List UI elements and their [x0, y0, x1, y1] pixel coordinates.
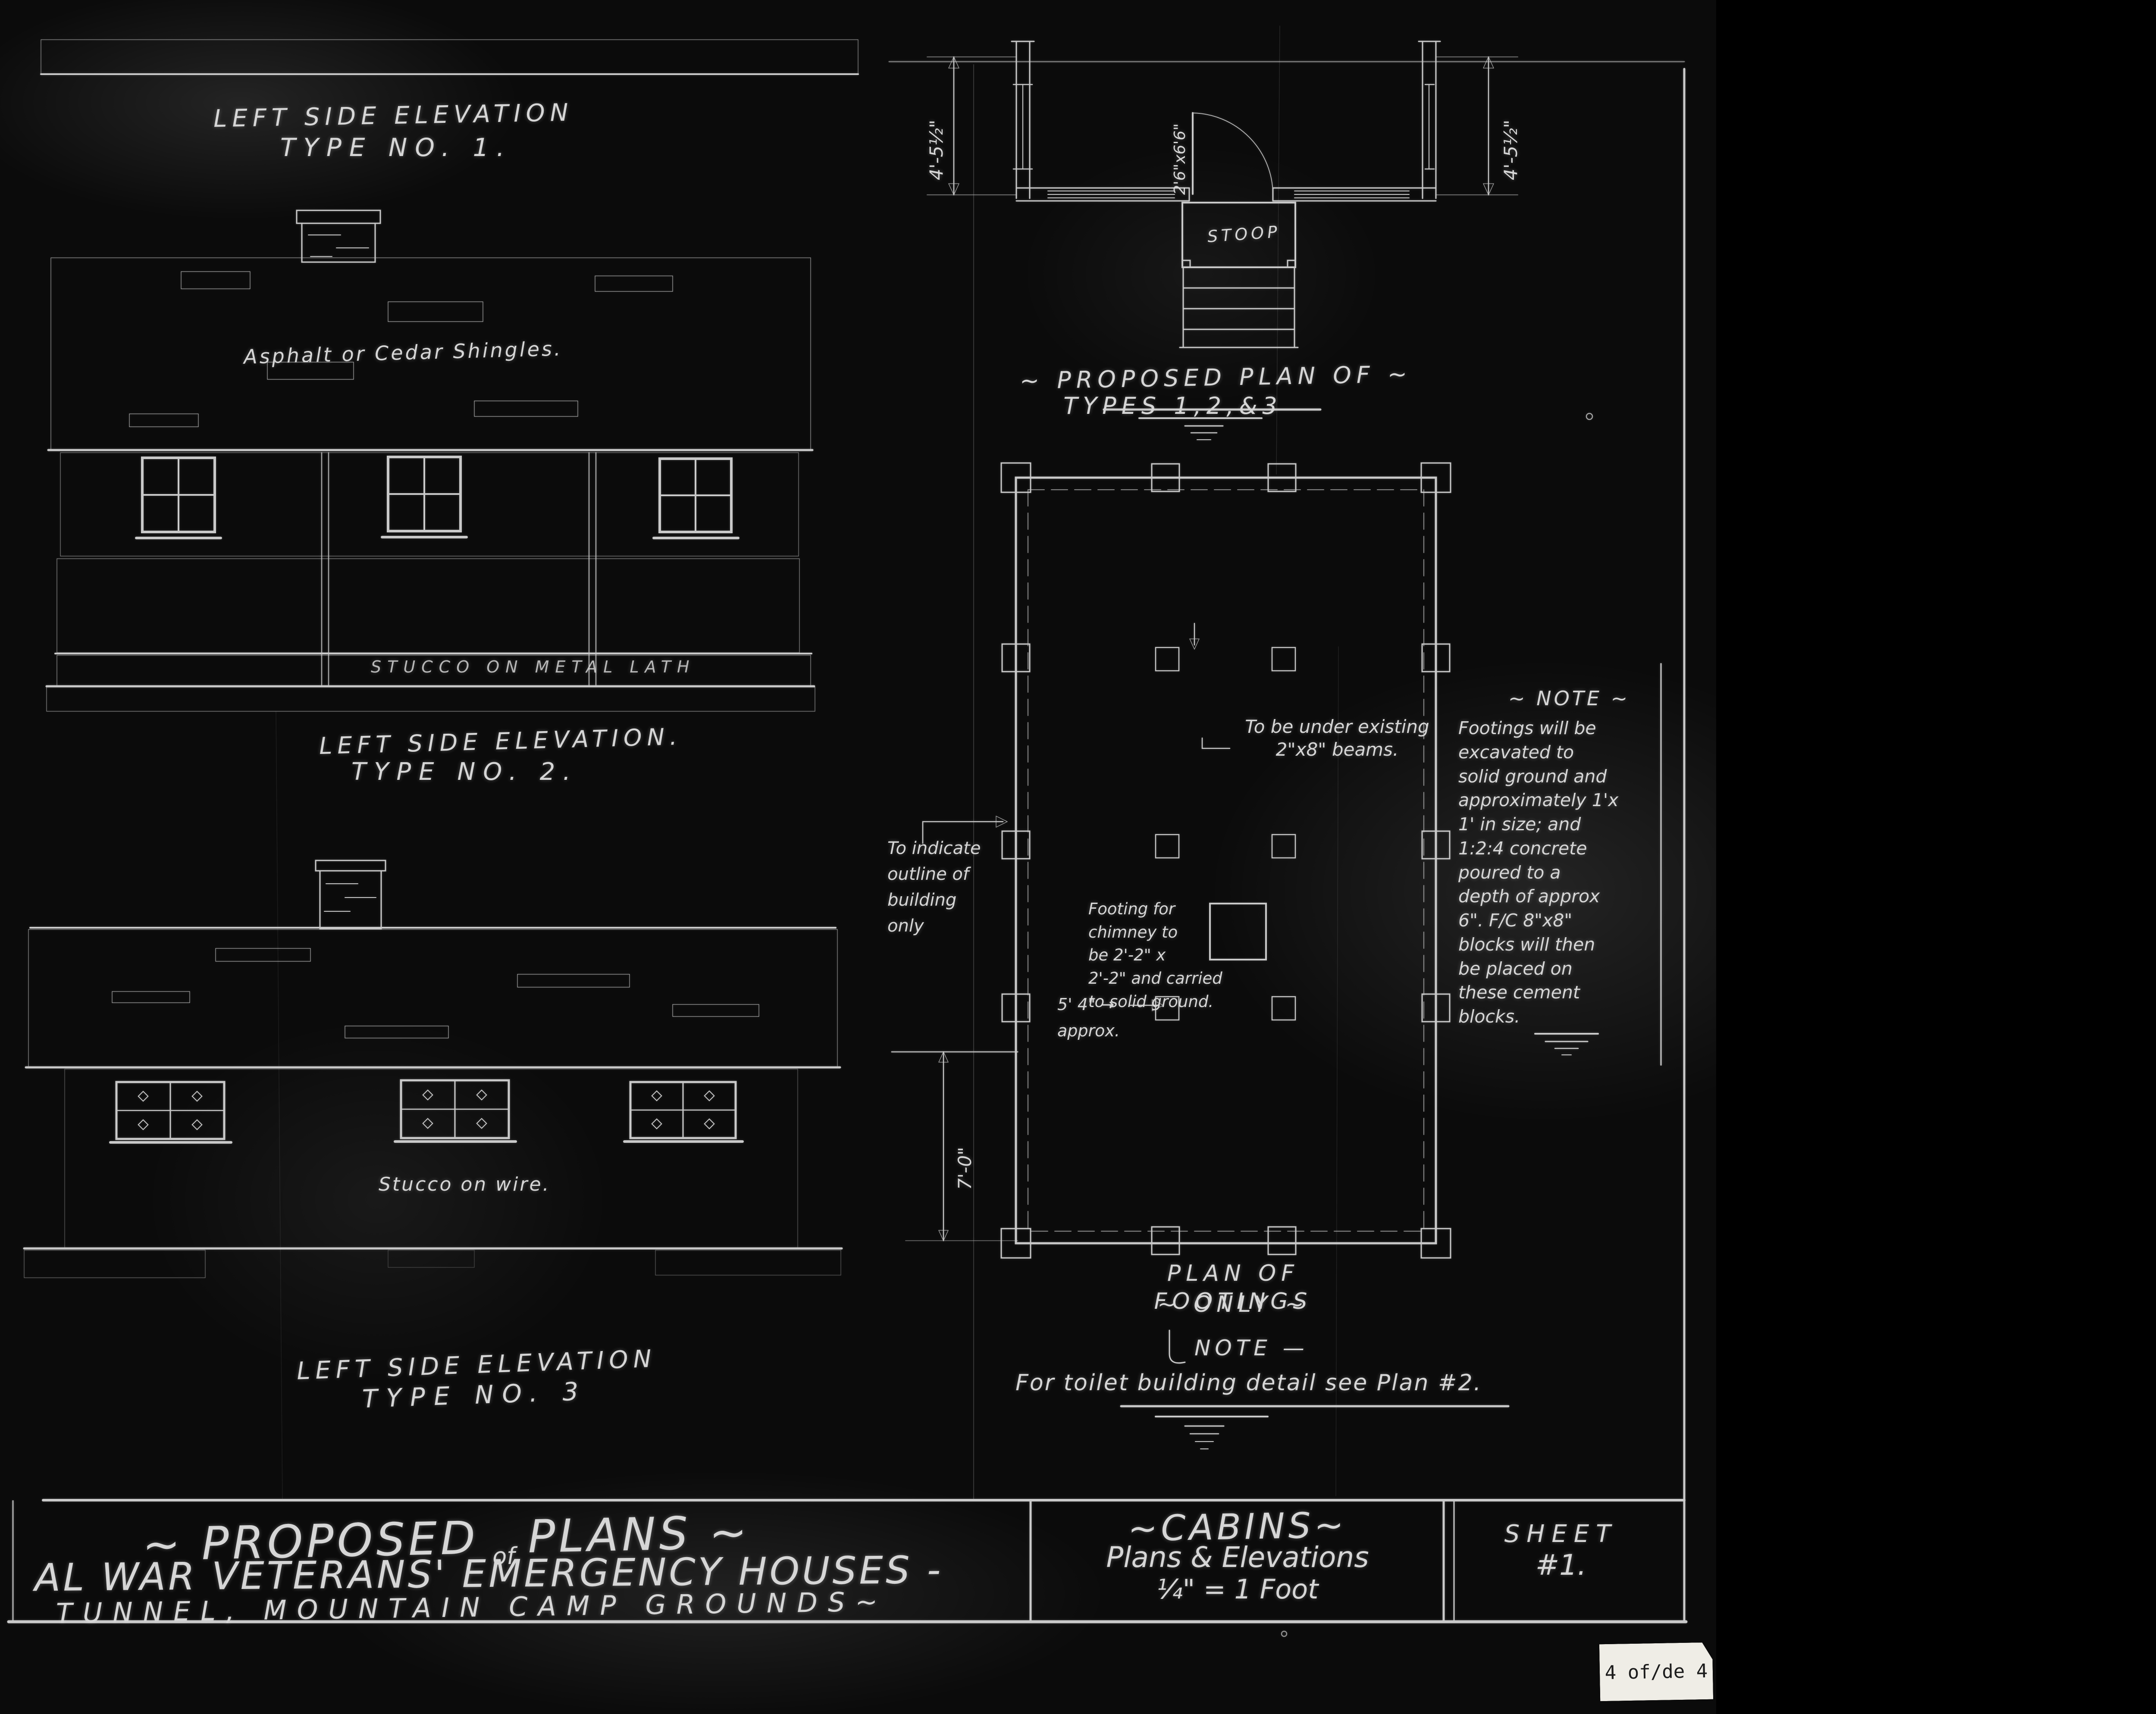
door-size-label: 2'6"x6'6" — [1170, 123, 1190, 195]
blueprint-sheet: LEFT SIDE ELEVATION TYPE NO. 1. Asphalt … — [0, 0, 1716, 1714]
type2-subtitle: TYPE NO. 2. — [351, 757, 578, 787]
type2-wall-label: Stucco on wire. — [379, 1173, 551, 1196]
scanned-blueprint-page: LEFT SIDE ELEVATION TYPE NO. 1. Asphalt … — [0, 0, 2156, 1714]
sheet-number: #1. — [1462, 1548, 1660, 1583]
page-count-label: 4 of/de 4 — [1604, 1660, 1708, 1683]
floor-plan-subtitle: TYPES 1,2,&3 — [1009, 391, 1337, 421]
footings-note-title: ~ NOTE ~ — [1508, 686, 1630, 711]
cabins-subtitle: Plans & Elevations — [1052, 1540, 1423, 1576]
cabins-scale: ¼" = 1 Foot — [1052, 1573, 1423, 1606]
footings-note-body: Footings will be excavated to solid grou… — [1458, 716, 1618, 1029]
archive-page-sticker: 4 of/de 4 — [1599, 1642, 1713, 1701]
general-note-title: NOTE — — [1194, 1335, 1309, 1362]
outline-note: To indicate outline of building only — [887, 835, 981, 939]
type1-title: LEFT SIDE ELEVATION — [213, 98, 573, 134]
approx-dimension-note: 5' 4" → approx. — [1057, 991, 1120, 1044]
footings-height-dimension: 7'-0" — [954, 1147, 977, 1190]
plan-right-dimension: 4'-5½" — [1500, 120, 1523, 180]
type1-subtitle: TYPE NO. 1. — [280, 132, 512, 163]
footings-plan-subtitle: ~ ONLY ~ — [1091, 1291, 1376, 1319]
type1-base-label: STUCCO ON METAL LATH — [371, 657, 696, 678]
general-note-body: For toilet building detail see Plan #2. — [1015, 1369, 1482, 1397]
sheet-word: SHEET — [1462, 1519, 1660, 1549]
beam-note: To be under existing 2"x8" beams. — [1232, 716, 1443, 761]
plan-left-dimension: 4'-5½" — [925, 120, 948, 180]
